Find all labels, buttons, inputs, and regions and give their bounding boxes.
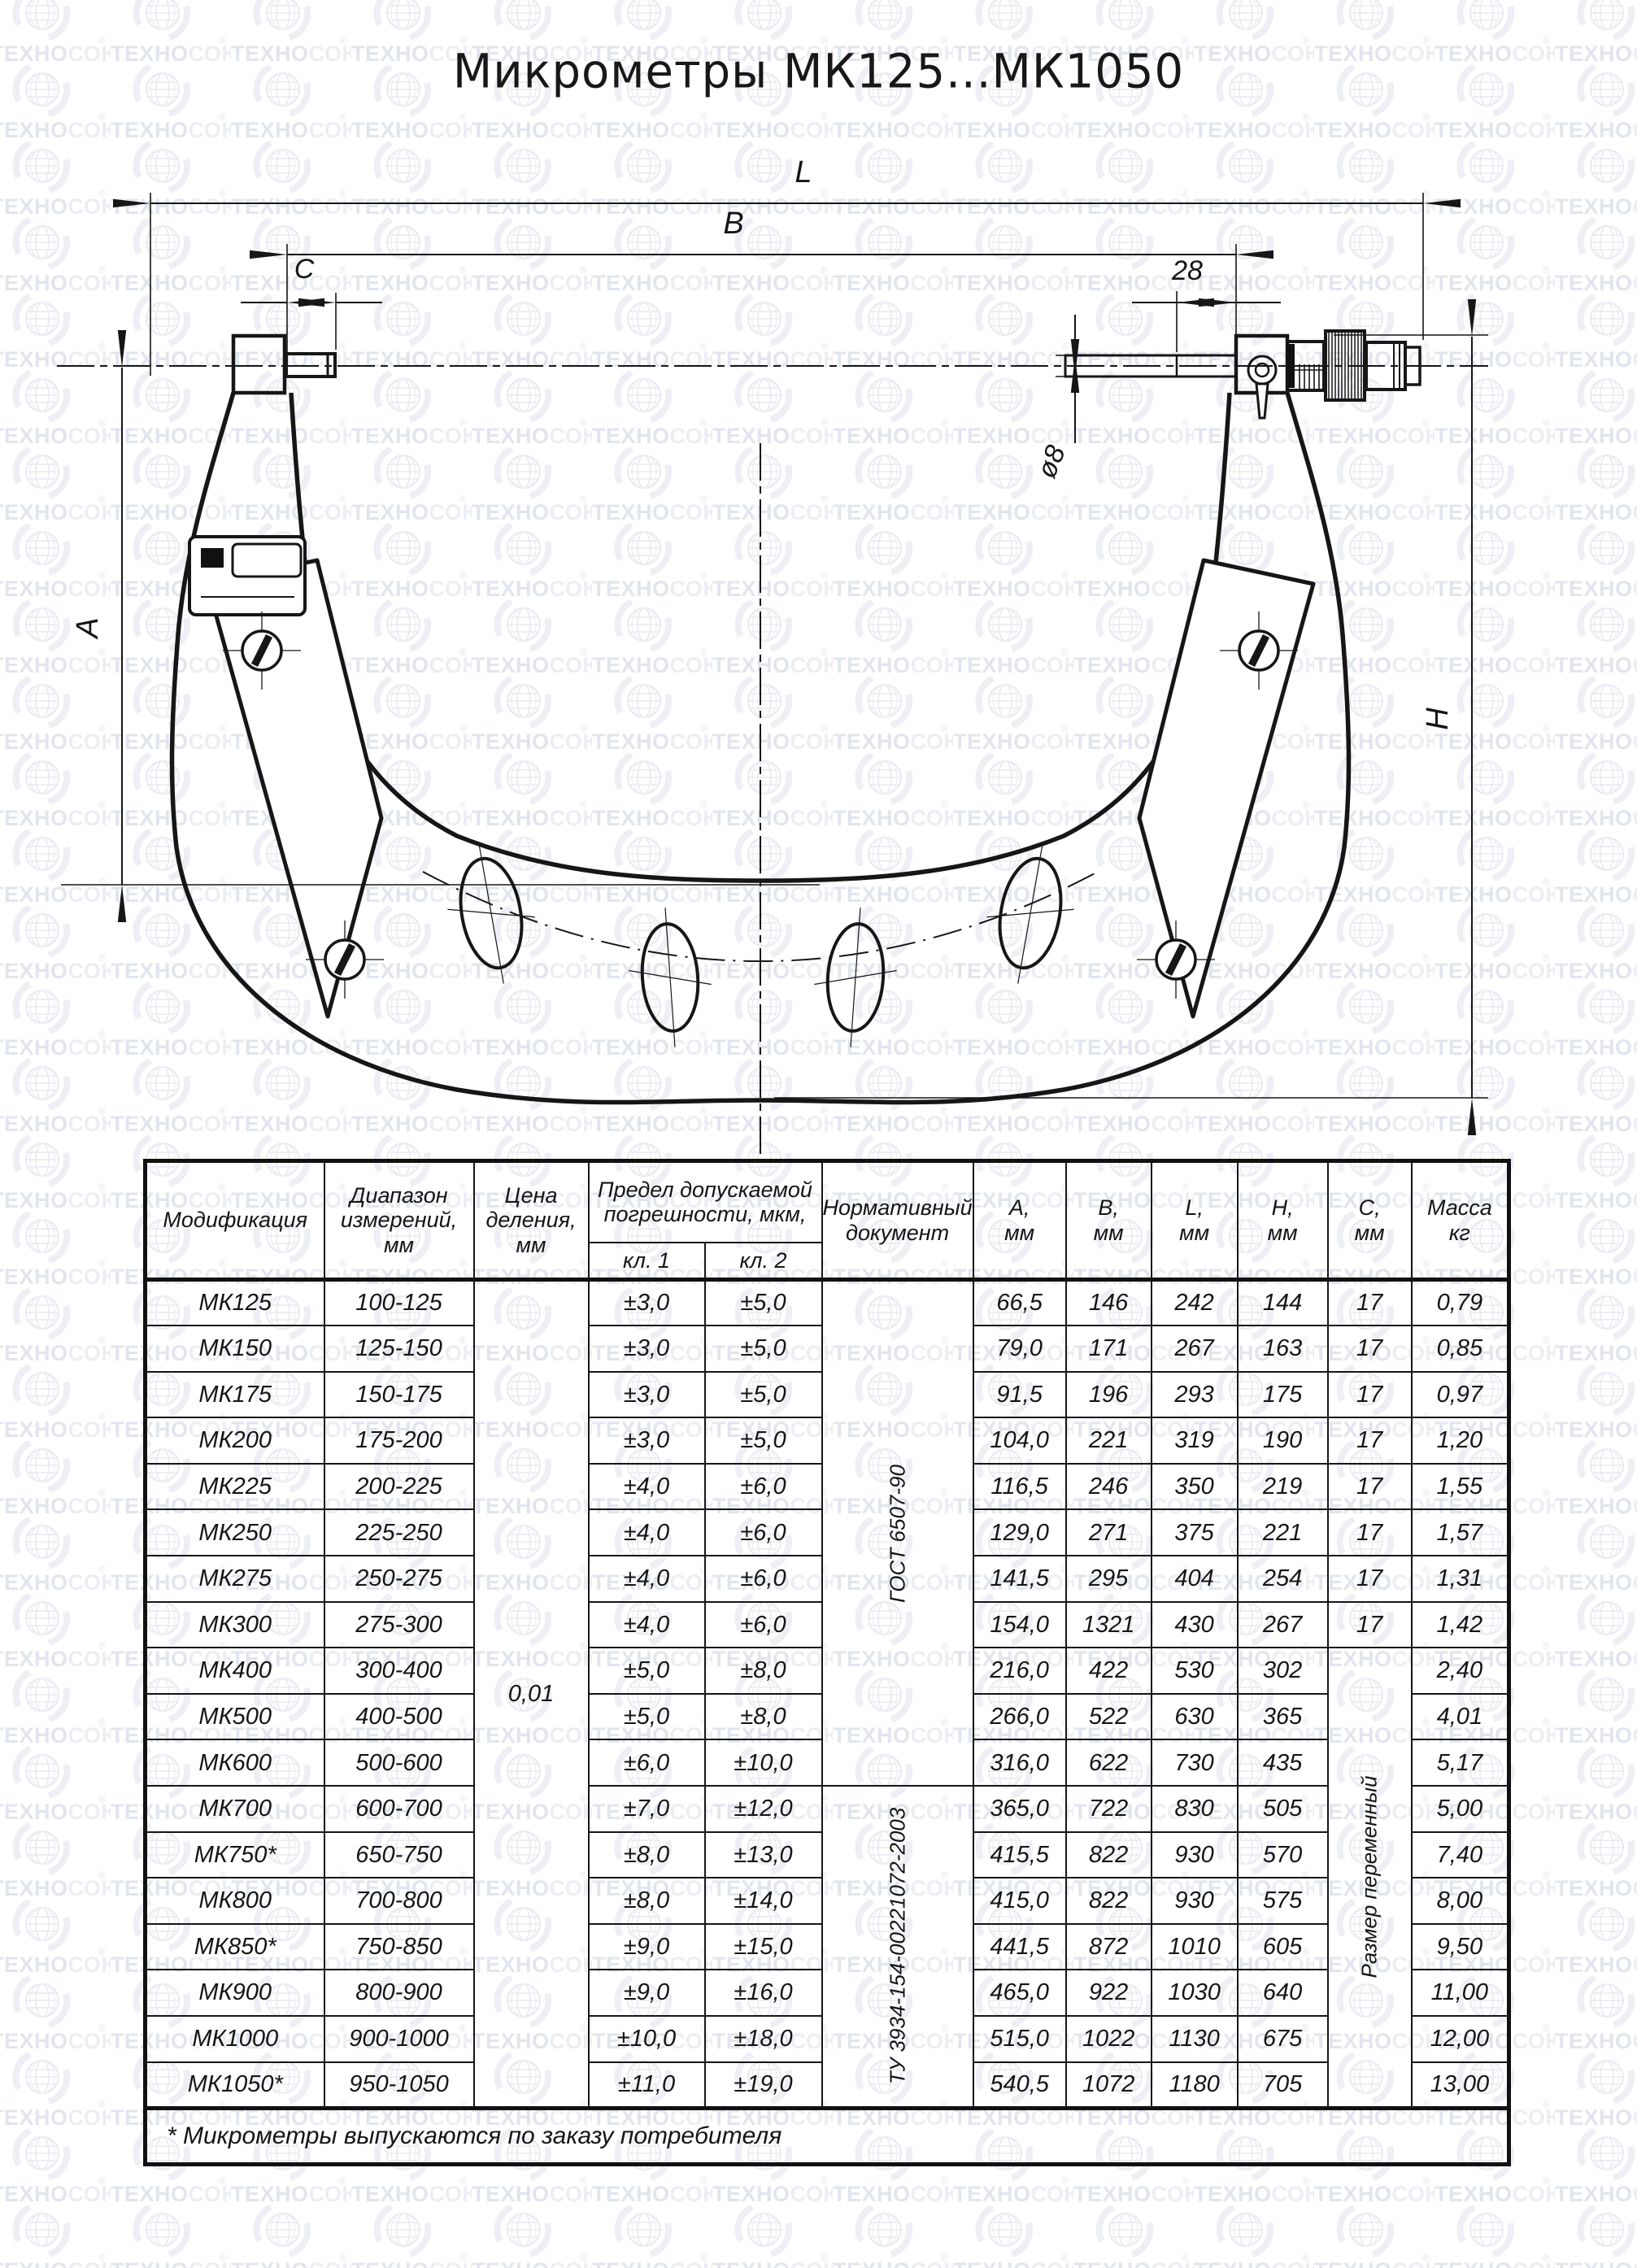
- table-cell: 350: [1152, 1464, 1238, 1510]
- page-title: Микрометры МК125...МК1050: [0, 45, 1637, 100]
- table-cell: 141,5: [973, 1556, 1066, 1602]
- table-cell: 575: [1238, 1878, 1328, 1924]
- table-cell: ±5,0: [705, 1280, 822, 1326]
- col-header-modification: Модификация: [146, 1161, 324, 1280]
- table-cell: 0,85: [1412, 1326, 1509, 1372]
- table-cell: 570: [1238, 1832, 1328, 1878]
- table-cell: 540,5: [973, 2062, 1066, 2109]
- table-cell: МК225: [146, 1464, 324, 1510]
- table-cell: 600-700: [324, 1786, 474, 1832]
- col-header-norm-doc: Нормативныйдокумент: [822, 1161, 973, 1280]
- rotated-cell-label: ГОСТ 6507-90: [886, 1465, 909, 1603]
- table-cell: 365,0: [973, 1786, 1066, 1832]
- table-cell: ±8,0: [589, 1878, 705, 1924]
- table-cell: ±11,0: [589, 2062, 705, 2109]
- table-cell: 221: [1066, 1417, 1152, 1464]
- table-cell: МК1000: [146, 2016, 324, 2062]
- table-cell: 1,42: [1412, 1602, 1509, 1648]
- table-cell: 950-1050: [324, 2062, 474, 2109]
- table-cell: 0,01: [474, 1280, 589, 2109]
- table-cell: 622: [1066, 1739, 1152, 1786]
- table-footnote: * Микрометры выпускаются по заказу потре…: [146, 2108, 1509, 2164]
- table-cell: 219: [1238, 1464, 1328, 1510]
- table-cell: 79,0: [973, 1326, 1066, 1372]
- table-cell: 872: [1066, 1924, 1152, 1970]
- table-cell: МК600: [146, 1739, 324, 1786]
- table-cell: 17: [1328, 1464, 1412, 1510]
- anvil-assembly: [233, 336, 335, 393]
- table-cell: 216,0: [973, 1648, 1066, 1694]
- table-cell: 515,0: [973, 2016, 1066, 2062]
- table-cell: МК850*: [146, 1924, 324, 1970]
- table-cell: ±8,0: [589, 1832, 705, 1878]
- table-cell: 530: [1152, 1648, 1238, 1694]
- table-cell: МК700: [146, 1786, 324, 1832]
- table-cell: 91,5: [973, 1372, 1066, 1418]
- nameplate: [189, 537, 305, 615]
- table-cell: МК200: [146, 1417, 324, 1464]
- spec-table-body: МК125100-1250,01±3,0±5,0ГОСТ 6507-9066,5…: [146, 1280, 1509, 2109]
- table-cell: 930: [1152, 1878, 1238, 1924]
- table-cell: ±4,0: [589, 1464, 705, 1510]
- table-cell: 271: [1066, 1509, 1152, 1556]
- table-cell: 1130: [1152, 2016, 1238, 2062]
- dim-label-C: C: [294, 254, 315, 285]
- table-cell: 66,5: [973, 1280, 1066, 1326]
- table-cell: ±12,0: [705, 1786, 822, 1832]
- table-cell: 13,00: [1412, 2062, 1509, 2109]
- table-cell: 266,0: [973, 1694, 1066, 1740]
- table-cell: 1321: [1066, 1602, 1152, 1648]
- table-cell: ±5,0: [589, 1694, 705, 1740]
- table-cell: 400-500: [324, 1694, 474, 1740]
- table-row: МК125100-1250,01±3,0±5,0ГОСТ 6507-9066,5…: [146, 1280, 1509, 1326]
- table-cell: Размер переменный: [1328, 1648, 1412, 2108]
- table-cell: ±3,0: [589, 1280, 705, 1326]
- table-cell: 175: [1238, 1372, 1328, 1418]
- table-cell: МК400: [146, 1648, 324, 1694]
- table-row: МК700600-700±7,0±12,0ТУ 3934-154-0022107…: [146, 1786, 1509, 1832]
- spec-table: Модификация Диапазонизмерений,мм Ценадел…: [143, 1159, 1511, 2166]
- table-cell: 129,0: [973, 1509, 1066, 1556]
- table-cell: 7,40: [1412, 1832, 1509, 1878]
- table-cell: 144: [1238, 1280, 1328, 1326]
- table-cell: 154,0: [973, 1602, 1066, 1648]
- table-cell: 650-750: [324, 1832, 474, 1878]
- table-cell: 221: [1238, 1509, 1328, 1556]
- table-cell: 146: [1066, 1280, 1152, 1326]
- table-cell: 150-175: [324, 1372, 474, 1418]
- table-cell: 316,0: [973, 1739, 1066, 1786]
- table-cell: 365: [1238, 1694, 1328, 1740]
- col-header-range: Диапазонизмерений,мм: [324, 1161, 474, 1280]
- table-cell: 17: [1328, 1280, 1412, 1326]
- table-cell: МК175: [146, 1372, 324, 1418]
- table-cell: 125-150: [324, 1326, 474, 1372]
- table-cell: ±4,0: [589, 1509, 705, 1556]
- table-cell: 640: [1238, 1970, 1328, 2016]
- table-cell: 630: [1152, 1694, 1238, 1740]
- table-cell: 250-275: [324, 1556, 474, 1602]
- table-cell: ±8,0: [705, 1694, 822, 1740]
- table-cell: ±7,0: [589, 1786, 705, 1832]
- table-cell: 435: [1238, 1739, 1328, 1786]
- dim-label-H: H: [1421, 707, 1455, 730]
- table-cell: МК150: [146, 1326, 324, 1372]
- table-cell: 4,01: [1412, 1694, 1509, 1740]
- rotated-cell-label: ТУ 3934-154-00221072-2003: [886, 1808, 909, 2084]
- table-cell: МК800: [146, 1878, 324, 1924]
- table-cell: ±9,0: [589, 1970, 705, 2016]
- table-cell: 0,79: [1412, 1280, 1509, 1326]
- table-cell: МК750*: [146, 1832, 324, 1878]
- datasheet-page: { "title": "Микрометры МК125...МК1050", …: [0, 0, 1637, 2268]
- table-cell: ±5,0: [705, 1372, 822, 1418]
- table-cell: 1180: [1152, 2062, 1238, 2109]
- table-cell: ±9,0: [589, 1924, 705, 1970]
- col-header-division: Ценаделения,мм: [474, 1161, 589, 1280]
- col-header-b: В,мм: [1066, 1161, 1152, 1280]
- table-cell: 430: [1152, 1602, 1238, 1648]
- table-cell: 822: [1066, 1878, 1152, 1924]
- table-cell: 225-250: [324, 1509, 474, 1556]
- dim-label-28: 28: [1171, 255, 1203, 286]
- col-header-error-limit: Предел допускаемойпогрешности, мкм,: [589, 1161, 822, 1243]
- table-cell: 505: [1238, 1786, 1328, 1832]
- table-cell: 11,00: [1412, 1970, 1509, 2016]
- table-cell: 17: [1328, 1326, 1412, 1372]
- table-cell: 267: [1152, 1326, 1238, 1372]
- table-cell: 822: [1066, 1832, 1152, 1878]
- table-cell: 1,55: [1412, 1464, 1509, 1510]
- col-header-class2: кл. 2: [705, 1243, 822, 1280]
- col-header-mass: Массакг: [1412, 1161, 1509, 1280]
- table-cell: ±3,0: [589, 1326, 705, 1372]
- table-cell: 254: [1238, 1556, 1328, 1602]
- table-cell: 295: [1066, 1556, 1152, 1602]
- table-cell: 246: [1066, 1464, 1152, 1510]
- table-cell: ±8,0: [705, 1648, 822, 1694]
- table-cell: 2,40: [1412, 1648, 1509, 1694]
- table-cell: МК275: [146, 1556, 324, 1602]
- table-cell: 163: [1238, 1326, 1328, 1372]
- table-cell: 5,17: [1412, 1739, 1509, 1786]
- table-cell: 922: [1066, 1970, 1152, 2016]
- table-cell: 422: [1066, 1648, 1152, 1694]
- col-header-h: Н,мм: [1238, 1161, 1328, 1280]
- table-cell: МК500: [146, 1694, 324, 1740]
- table-cell: 900-1000: [324, 2016, 474, 2062]
- table-cell: 605: [1238, 1924, 1328, 1970]
- table-cell: ±3,0: [589, 1372, 705, 1418]
- table-cell: ±3,0: [589, 1417, 705, 1464]
- col-header-l: L,мм: [1152, 1161, 1238, 1280]
- table-cell: МК125: [146, 1280, 324, 1326]
- table-cell: ±19,0: [705, 2062, 822, 2109]
- table-cell: ±14,0: [705, 1878, 822, 1924]
- table-header: Модификация Диапазонизмерений,мм Ценадел…: [146, 1161, 1509, 1280]
- table-cell: ±10,0: [589, 2016, 705, 2062]
- table-cell: 175-200: [324, 1417, 474, 1464]
- table-cell: 17: [1328, 1556, 1412, 1602]
- table-cell: 9,50: [1412, 1924, 1509, 1970]
- table-cell: ±16,0: [705, 1970, 822, 2016]
- table-cell: 17: [1328, 1509, 1412, 1556]
- table-cell: 17: [1328, 1372, 1412, 1418]
- table-cell: ±6,0: [705, 1464, 822, 1510]
- micrometer-drawing: L B C 28 ø8 A H: [0, 0, 1637, 1159]
- table-cell: 415,0: [973, 1878, 1066, 1924]
- dim-label-dia8: ø8: [1031, 441, 1072, 482]
- dim-label-A: A: [71, 617, 105, 639]
- table-cell: ±6,0: [705, 1556, 822, 1602]
- table-cell: 17: [1328, 1602, 1412, 1648]
- table-cell: 1010: [1152, 1924, 1238, 1970]
- table-cell: 0,97: [1412, 1372, 1509, 1418]
- col-header-class1: кл. 1: [589, 1243, 705, 1280]
- table-cell: 441,5: [973, 1924, 1066, 1970]
- table-cell: 275-300: [324, 1602, 474, 1648]
- table-cell: 1022: [1066, 2016, 1152, 2062]
- table-cell: 12,00: [1412, 2016, 1509, 2062]
- table-cell: 415,5: [973, 1832, 1066, 1878]
- table-cell: ±10,0: [705, 1739, 822, 1786]
- table-cell: ТУ 3934-154-00221072-2003: [822, 1786, 973, 2108]
- table-cell: МК1050*: [146, 2062, 324, 2109]
- table-cell: 319: [1152, 1417, 1238, 1464]
- table-cell: ±13,0: [705, 1832, 822, 1878]
- table-cell: ±6,0: [589, 1739, 705, 1786]
- footnote-row: * Микрометры выпускаются по заказу потре…: [146, 2108, 1509, 2164]
- table-cell: ±5,0: [705, 1326, 822, 1372]
- table-cell: ±18,0: [705, 2016, 822, 2062]
- table-cell: ±15,0: [705, 1924, 822, 1970]
- table-cell: 1030: [1152, 1970, 1238, 2016]
- table-cell: 190: [1238, 1417, 1328, 1464]
- micrometer-head: [1065, 331, 1420, 418]
- table-cell: 116,5: [973, 1464, 1066, 1510]
- table-cell: 17: [1328, 1417, 1412, 1464]
- table-cell: 375: [1152, 1509, 1238, 1556]
- table-cell: 300-400: [324, 1648, 474, 1694]
- dim-label-B: B: [723, 207, 743, 241]
- table-cell: 750-850: [324, 1924, 474, 1970]
- table-cell: МК250: [146, 1509, 324, 1556]
- table-cell: 1,31: [1412, 1556, 1509, 1602]
- table-cell: 930: [1152, 1832, 1238, 1878]
- table-cell: 302: [1238, 1648, 1328, 1694]
- table-cell: 830: [1152, 1786, 1238, 1832]
- col-header-c: С,мм: [1328, 1161, 1412, 1280]
- table-cell: 1,57: [1412, 1509, 1509, 1556]
- table-cell: ±6,0: [705, 1602, 822, 1648]
- table-cell: 675: [1238, 2016, 1328, 2062]
- table-cell: ГОСТ 6507-90: [822, 1280, 973, 1787]
- table-cell: 465,0: [973, 1970, 1066, 2016]
- table-cell: МК900: [146, 1970, 324, 2016]
- table-cell: ±4,0: [589, 1602, 705, 1648]
- table-cell: 722: [1066, 1786, 1152, 1832]
- table-cell: 500-600: [324, 1739, 474, 1786]
- table-cell: 730: [1152, 1739, 1238, 1786]
- table-cell: 104,0: [973, 1417, 1066, 1464]
- table-cell: 800-900: [324, 1970, 474, 2016]
- table-cell: 522: [1066, 1694, 1152, 1740]
- table-cell: 705: [1238, 2062, 1328, 2109]
- table-cell: 5,00: [1412, 1786, 1509, 1832]
- table-cell: ±5,0: [589, 1648, 705, 1694]
- table-cell: 8,00: [1412, 1878, 1509, 1924]
- table-cell: 100-125: [324, 1280, 474, 1326]
- table-cell: 293: [1152, 1372, 1238, 1418]
- table-cell: ±4,0: [589, 1556, 705, 1602]
- table-cell: 1072: [1066, 2062, 1152, 2109]
- table-cell: ±5,0: [705, 1417, 822, 1464]
- table-cell: 700-800: [324, 1878, 474, 1924]
- table-cell: 171: [1066, 1326, 1152, 1372]
- table-cell: 1,20: [1412, 1417, 1509, 1464]
- col-header-a: А,мм: [973, 1161, 1066, 1280]
- table-cell: 196: [1066, 1372, 1152, 1418]
- table-cell: 404: [1152, 1556, 1238, 1602]
- table-cell: 267: [1238, 1602, 1328, 1648]
- dim-label-L: L: [795, 155, 812, 189]
- table-cell: ±6,0: [705, 1509, 822, 1556]
- rotated-cell-label: Размер переменный: [1358, 1776, 1382, 1979]
- table-cell: 242: [1152, 1280, 1238, 1326]
- table-cell: МК300: [146, 1602, 324, 1648]
- table-cell: 200-225: [324, 1464, 474, 1510]
